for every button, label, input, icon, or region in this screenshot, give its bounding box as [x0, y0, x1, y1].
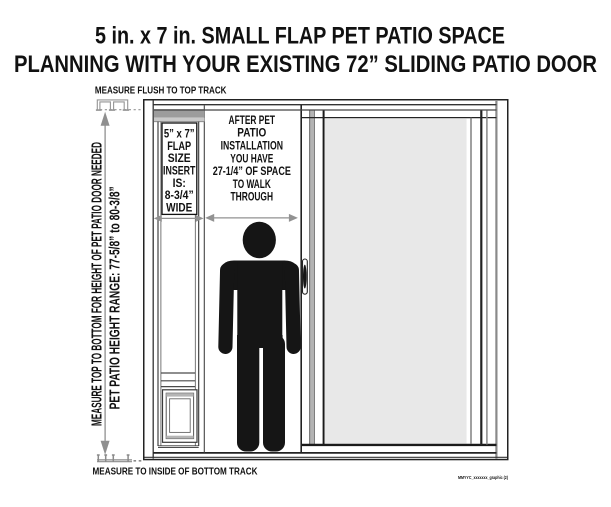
svg-text:MMYYC_xxxxxxx_graphic (2): MMYYC_xxxxxxx_graphic (2)	[458, 475, 508, 480]
svg-text:WIDE: WIDE	[166, 200, 192, 214]
svg-text:MEASURE TOP TO BOTTOM FOR HEIG: MEASURE TOP TO BOTTOM FOR HEIGHT OF PET …	[88, 142, 105, 426]
svg-text:5 in. x 7 in. SMALL FLAP PET P: 5 in. x 7 in. SMALL FLAP PET PATIO SPACE	[95, 23, 505, 50]
svg-text:MEASURE TO INSIDE OF BOTTOM TR: MEASURE TO INSIDE OF BOTTOM TRACK	[93, 466, 258, 477]
svg-text:PET PATIO HEIGHT RANGE: 77-5/8: PET PATIO HEIGHT RANGE: 77-5/8” to 80-3/…	[107, 186, 124, 409]
svg-text:PLANNING WITH YOUR EXISTING 72: PLANNING WITH YOUR EXISTING 72” SLIDING …	[14, 51, 597, 78]
svg-text:MEASURE FLUSH TO TOP TRACK: MEASURE FLUSH TO TOP TRACK	[95, 85, 227, 96]
svg-text:THROUGH: THROUGH	[231, 190, 274, 204]
